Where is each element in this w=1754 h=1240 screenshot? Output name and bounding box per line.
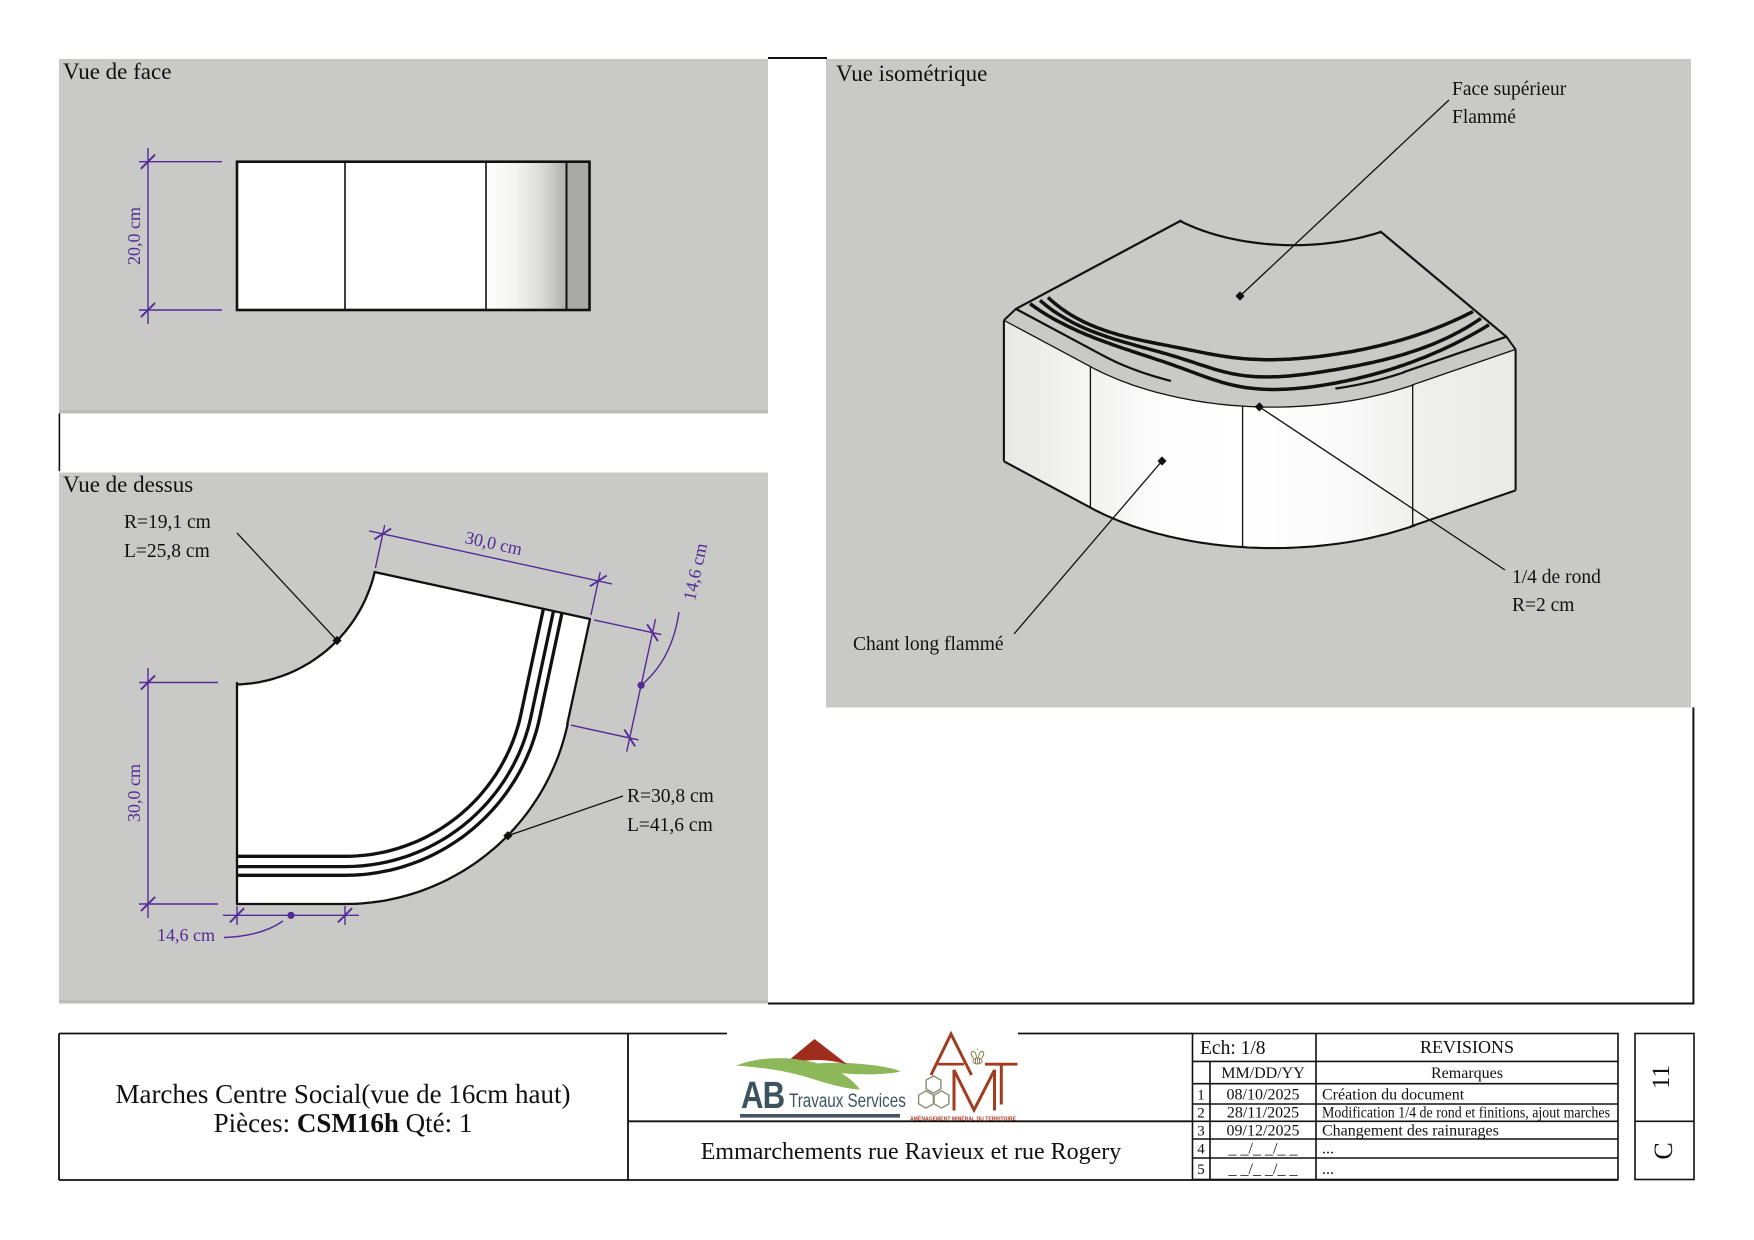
svg-text:Pièces: CSM16h Qté: 1: Pièces: CSM16h Qté: 1 [214,1108,473,1138]
svg-text:...: ... [1322,1141,1334,1158]
svg-text:20,0 cm: 20,0 cm [124,207,144,265]
svg-text:3: 3 [1197,1124,1205,1140]
svg-text:Vue de face: Vue de face [63,59,171,84]
svg-text:_ _/_ _/_ _: _ _/_ _/_ _ [1228,1161,1299,1178]
svg-text:4: 4 [1197,1142,1205,1158]
svg-text:09/12/2025: 09/12/2025 [1227,1123,1300,1140]
svg-text:Chant long flammé: Chant long flammé [853,634,1004,655]
svg-text:11: 11 [1648,1065,1675,1089]
svg-text:_ _/_ _/_ _: _ _/_ _/_ _ [1228,1141,1299,1158]
svg-text:AB: AB [741,1075,784,1117]
svg-text:Flammé: Flammé [1452,107,1516,128]
svg-text:Face supérieur: Face supérieur [1452,79,1567,100]
svg-text:R=2 cm: R=2 cm [1512,595,1574,616]
svg-text:R=30,8 cm: R=30,8 cm [627,786,714,807]
svg-text:Changement des rainurages: Changement des rainurages [1322,1123,1499,1140]
svg-text:L=25,8 cm: L=25,8 cm [124,541,210,562]
svg-text:L=41,6 cm: L=41,6 cm [627,815,713,836]
svg-text:REVISIONS: REVISIONS [1420,1037,1514,1057]
svg-text:Vue isométrique: Vue isométrique [836,61,987,86]
svg-text:AMÉNAGEMENT MINÉRAL DU TERRITO: AMÉNAGEMENT MINÉRAL DU TERRITOIRE [910,1115,1016,1123]
svg-text:2: 2 [1197,1106,1205,1122]
svg-text:Vue de dessus: Vue de dessus [63,472,193,497]
svg-text:MM/DD/YY: MM/DD/YY [1221,1065,1305,1082]
svg-text:...: ... [1322,1161,1334,1178]
svg-text:1/4 de rond: 1/4 de rond [1512,567,1601,588]
svg-text:Marches Centre Social(vue de 1: Marches Centre Social(vue de 16cm haut) [115,1079,570,1109]
svg-text:C: C [1649,1142,1678,1159]
svg-text:Remarques: Remarques [1431,1065,1503,1082]
svg-text:Modification 1/4 de rond et fi: Modification 1/4 de rond et finitions, a… [1322,1105,1610,1122]
svg-text:R=19,1 cm: R=19,1 cm [124,512,211,533]
svg-text:30,0 cm: 30,0 cm [124,764,144,822]
svg-text:1: 1 [1197,1088,1205,1104]
svg-text:08/10/2025: 08/10/2025 [1227,1087,1300,1104]
svg-text:5: 5 [1197,1162,1205,1178]
svg-text:Travaux Services: Travaux Services [789,1089,906,1111]
svg-text:Emmarchements rue Ravieux et r: Emmarchements rue Ravieux et rue Rogery [701,1139,1122,1165]
svg-text:28/11/2025: 28/11/2025 [1227,1105,1299,1122]
svg-text:Création du document: Création du document [1322,1087,1465,1104]
svg-text:Ech: 1/8: Ech: 1/8 [1200,1038,1266,1059]
svg-text:14,6 cm: 14,6 cm [157,925,215,945]
